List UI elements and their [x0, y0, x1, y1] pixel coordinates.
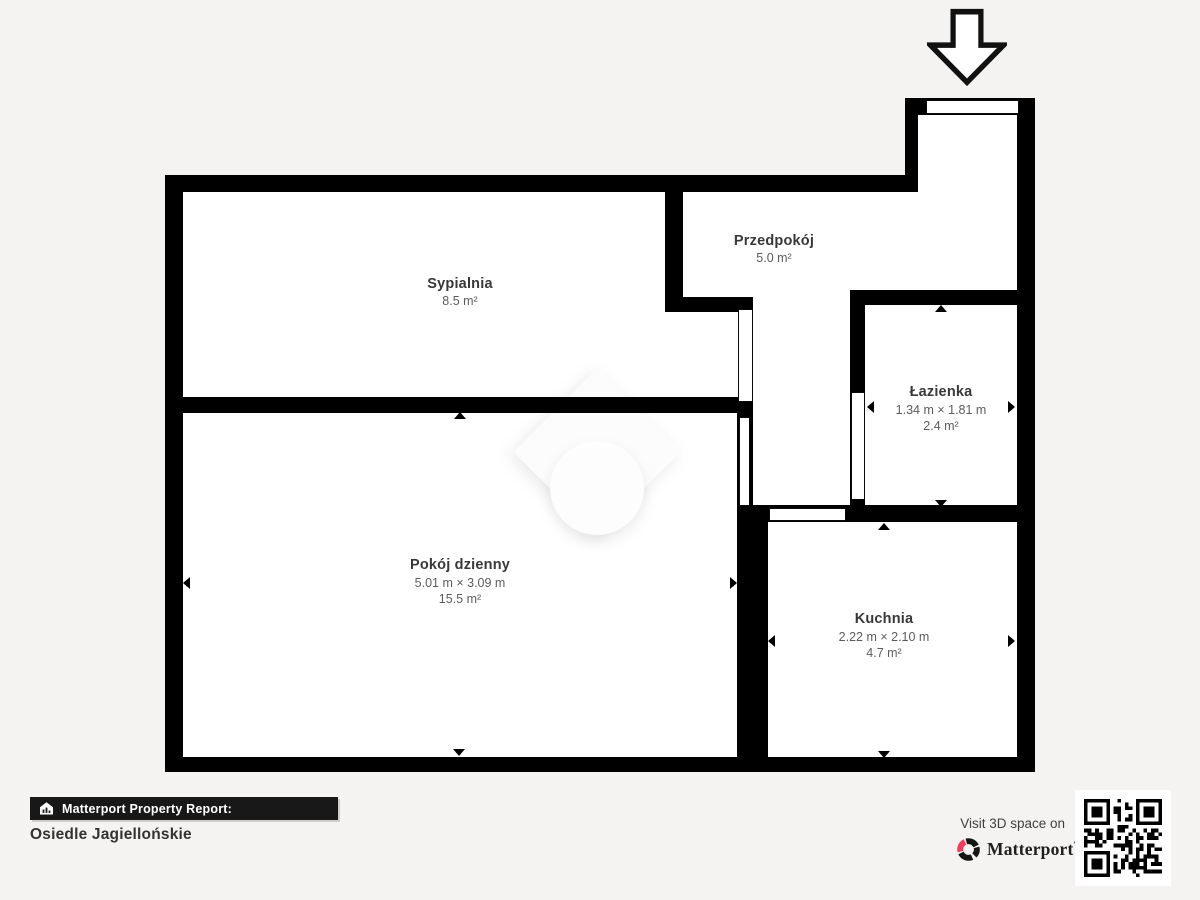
room-area: 8.5 m² [350, 294, 570, 309]
room-label-sypialnia: Sypialnia 8.5 m² [350, 276, 570, 309]
matterport-logo-icon [956, 837, 981, 862]
room-dimensions: 1.34 m × 1.81 m [831, 403, 1051, 418]
wall [165, 397, 753, 413]
door-kitchen [769, 508, 846, 521]
wall [165, 175, 918, 192]
dimension-arrow [454, 412, 466, 419]
door-living-room [739, 417, 750, 506]
dimension-arrow [453, 749, 465, 756]
room-dimensions: 5.01 m × 3.09 m [350, 576, 570, 591]
dimension-arrow [1008, 635, 1015, 647]
entrance-arrow-icon [927, 8, 1007, 86]
room-label-pokoj-dzienny: Pokój dzienny 5.01 m × 3.09 m 15.5 m² [350, 557, 570, 607]
wall [165, 175, 183, 772]
room-name: Sypialnia [350, 276, 570, 293]
qr-card [1075, 790, 1171, 886]
visit-3d-text: Visit 3D space on [865, 816, 1065, 831]
property-name: Osiedle Jagiellońskie [30, 826, 192, 844]
dimension-arrow [730, 577, 737, 589]
report-banner-label: Matterport Property Report: [62, 802, 232, 816]
wall [850, 290, 1035, 305]
matterport-watermark-circle [550, 441, 644, 535]
wall [737, 505, 768, 772]
room-area: 15.5 m² [350, 592, 570, 607]
wall [165, 757, 1035, 772]
dimension-arrow [935, 500, 947, 507]
report-banner: Matterport Property Report: [30, 797, 338, 820]
dimension-arrow [878, 751, 890, 758]
wall [1017, 98, 1035, 772]
room-label-kuchnia: Kuchnia 2.22 m × 2.10 m 4.7 m² [774, 611, 994, 661]
dimension-arrow [183, 577, 190, 589]
house-chart-icon [39, 802, 54, 815]
dimension-arrow [878, 523, 890, 530]
matterport-brand: Matterport' [956, 837, 1076, 862]
room-name: Przedpokój [664, 233, 884, 250]
room-name: Łazienka [831, 384, 1051, 401]
room-name: Kuchnia [774, 611, 994, 628]
door-bedroom [738, 309, 753, 402]
room-area: 2.4 m² [831, 419, 1051, 434]
room-name: Pokój dzienny [350, 557, 570, 574]
room-area: 4.7 m² [774, 646, 994, 661]
matterport-wordmark: Matterport' [987, 839, 1076, 860]
room-label-przedpokoj: Przedpokój 5.0 m² [664, 233, 884, 266]
room-area: 5.0 m² [664, 251, 884, 266]
room-dimensions: 2.22 m × 2.10 m [774, 630, 994, 645]
qr-code [1084, 799, 1162, 877]
room-label-lazienka: Łazienka 1.34 m × 1.81 m 2.4 m² [831, 384, 1051, 434]
door-entrance [926, 100, 1019, 114]
dimension-arrow [935, 305, 947, 312]
